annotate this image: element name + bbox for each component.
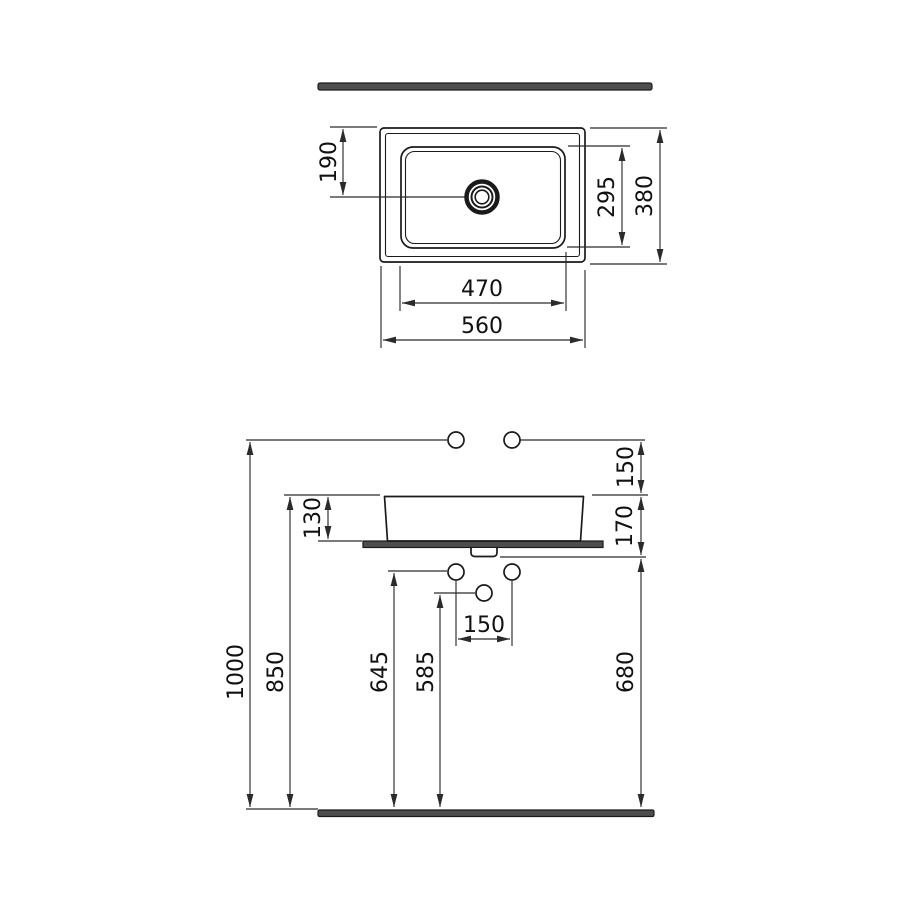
wall-bar — [318, 83, 652, 90]
dim-label-170: 170 — [613, 505, 638, 547]
counter-bar — [363, 541, 603, 548]
dim-label-645: 645 — [368, 651, 393, 693]
faucet-outlet-left-circle — [448, 432, 464, 448]
dim-label-560: 560 — [461, 314, 503, 339]
technical-drawing-page: 190 295 380 470 560 — [0, 0, 900, 900]
basin-profile — [385, 497, 584, 542]
dim-label-150-tap: 150 — [614, 446, 639, 488]
dim-label-1000: 1000 — [224, 644, 249, 700]
dim-rim-to-outlet: 170 — [613, 497, 641, 555]
top-view: 190 295 380 470 560 — [317, 83, 667, 348]
dim-drain-from-front: 190 — [317, 127, 465, 197]
dim-label-380: 380 — [633, 175, 658, 217]
faucet-outlet-right-circle — [504, 432, 520, 448]
dim-label-470: 470 — [461, 277, 503, 302]
drain-circle — [467, 182, 498, 213]
dim-label-150-spacing: 150 — [463, 613, 505, 638]
dim-tap-line-height: 1000 — [224, 442, 250, 807]
dim-supply-hole-height: 645 — [368, 573, 394, 807]
floor-bar — [318, 810, 654, 817]
washbasin-technical-drawing: 190 295 380 470 560 — [0, 0, 900, 900]
dim-inner-depth: 295 — [567, 146, 630, 247]
dim-label-130: 130 — [301, 497, 326, 539]
dim-outlet-line-height: 680 — [614, 559, 641, 807]
dim-inner-width: 470 — [400, 252, 566, 311]
dim-label-680: 680 — [614, 651, 639, 693]
dim-label-295: 295 — [595, 176, 620, 218]
dim-tap-above-rim: 150 — [614, 442, 641, 493]
dim-label-190: 190 — [317, 141, 342, 183]
drain-hole-circle — [476, 585, 492, 601]
drain-tailpiece — [471, 548, 497, 557]
supply-hole-left-circle — [448, 564, 464, 580]
dim-rim-height: 850 — [264, 497, 290, 807]
front-view: 150 130 170 150 1000 85 — [224, 432, 654, 817]
supply-hole-right-circle — [504, 564, 520, 580]
dim-label-585: 585 — [414, 651, 439, 693]
dim-label-850: 850 — [264, 651, 289, 693]
dim-basin-height: 130 — [301, 497, 362, 541]
dim-drain-hole-height: 585 — [414, 595, 440, 807]
